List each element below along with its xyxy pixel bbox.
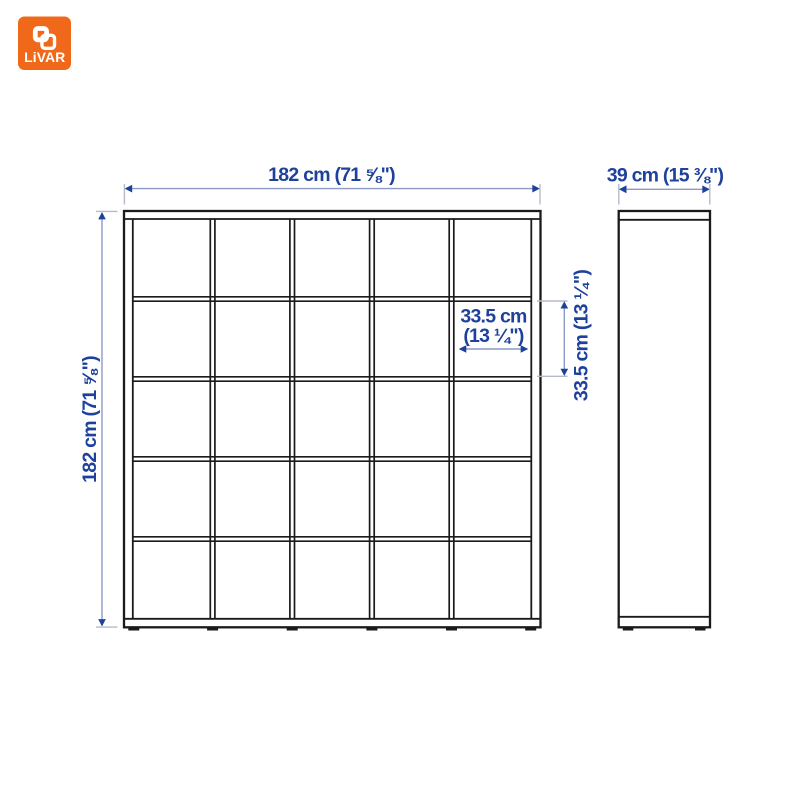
- svg-text:182 cm (71 ⅝"): 182 cm (71 ⅝"): [268, 164, 395, 186]
- svg-text:LiVAR: LiVAR: [24, 50, 65, 65]
- svg-text:(13 ¼"): (13 ¼"): [463, 325, 524, 347]
- svg-text:39 cm (15 ⅜"): 39 cm (15 ⅜"): [607, 165, 724, 187]
- svg-text:33.5 cm (13 ¼"): 33.5 cm (13 ¼"): [571, 270, 593, 402]
- svg-text:182 cm (71 ⅝"): 182 cm (71 ⅝"): [79, 356, 101, 483]
